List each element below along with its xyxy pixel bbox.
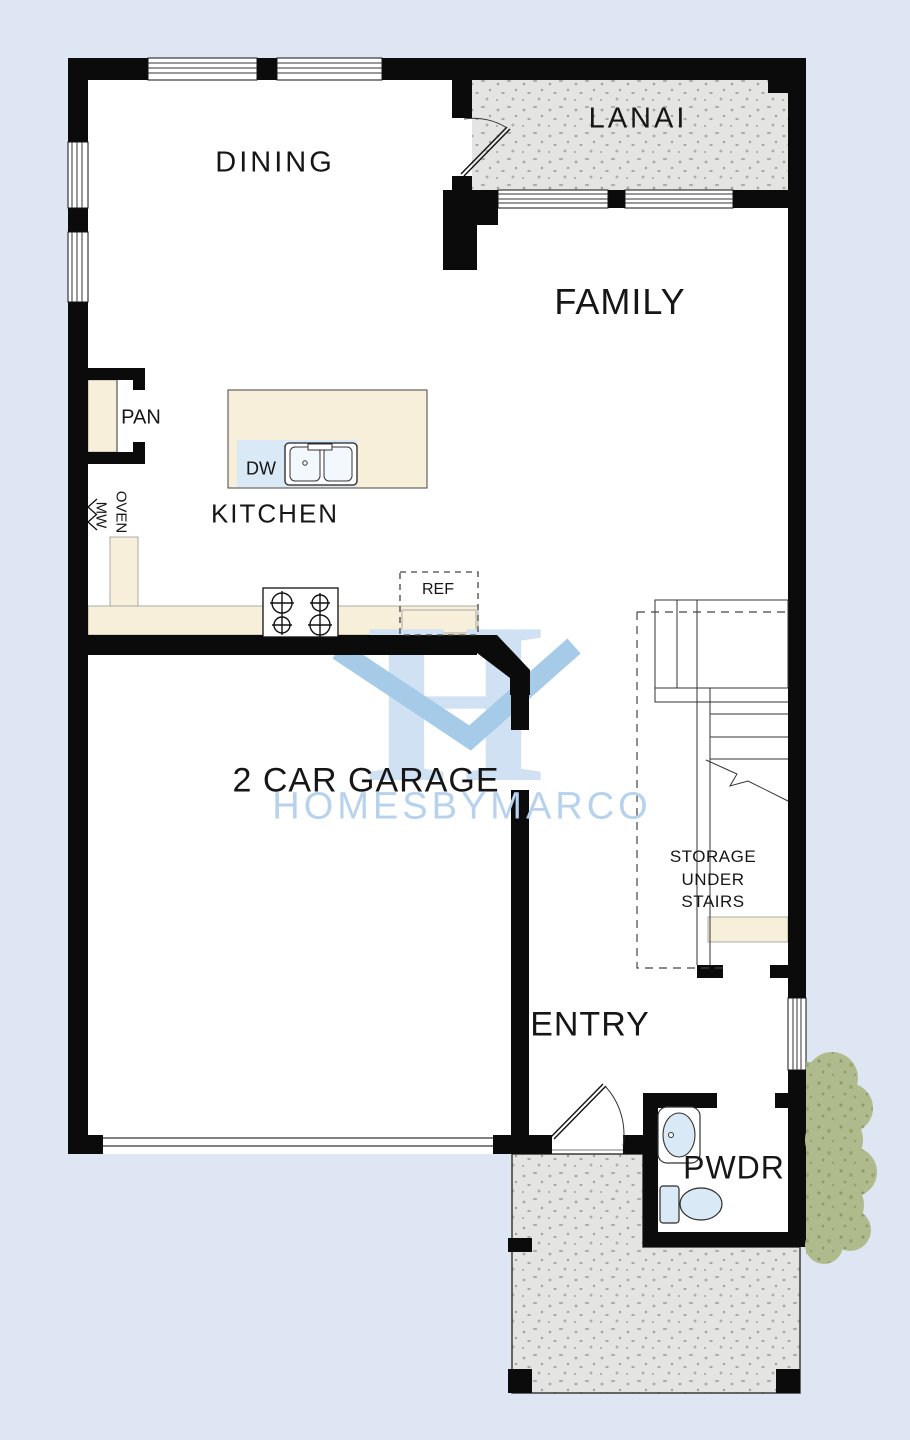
stairs-shelf xyxy=(708,917,788,942)
porch-post xyxy=(776,1369,800,1393)
fixture-label-oven: OVEN xyxy=(113,491,130,534)
window-top-2 xyxy=(277,58,382,80)
floor-plan-canvas: H xyxy=(0,0,910,1440)
watermark-wordmark: HOMESBYMARCO xyxy=(272,786,651,829)
window-left-1 xyxy=(68,142,88,208)
room-label-entry: ENTRY xyxy=(530,1006,650,1045)
pantry-shelf xyxy=(88,380,117,452)
storage-label-line3: STAIRS xyxy=(681,892,744,912)
kitchen-sink xyxy=(285,443,357,485)
room-label-dining: DINING xyxy=(215,147,335,180)
porch-post xyxy=(508,1369,532,1393)
window-lanai-1 xyxy=(498,190,608,208)
room-label-family: FAMILY xyxy=(554,281,685,323)
window-top-1 xyxy=(148,58,257,80)
window-entry xyxy=(788,998,806,1070)
room-label-powder: PWDR xyxy=(683,1150,785,1187)
cooktop xyxy=(263,588,338,637)
fixture-label-microwave: MW xyxy=(93,502,110,529)
toilet xyxy=(660,1186,722,1223)
floor-plan: H xyxy=(0,0,910,1440)
fixture-label-dishwasher: DW xyxy=(246,459,276,480)
room-label-lanai: LANAI xyxy=(589,103,688,136)
garage-door xyxy=(103,1133,493,1154)
room-label-kitchen: KITCHEN xyxy=(211,499,339,530)
storage-label-line1: STORAGE xyxy=(670,847,756,867)
storage-label-line2: UNDER xyxy=(682,870,745,890)
fixture-label-refrigerator: REF xyxy=(422,581,454,599)
porch-post xyxy=(508,1238,532,1252)
window-left-2 xyxy=(68,232,88,302)
window-lanai-2 xyxy=(625,190,733,208)
fixture-label-pantry: PAN xyxy=(121,407,161,430)
